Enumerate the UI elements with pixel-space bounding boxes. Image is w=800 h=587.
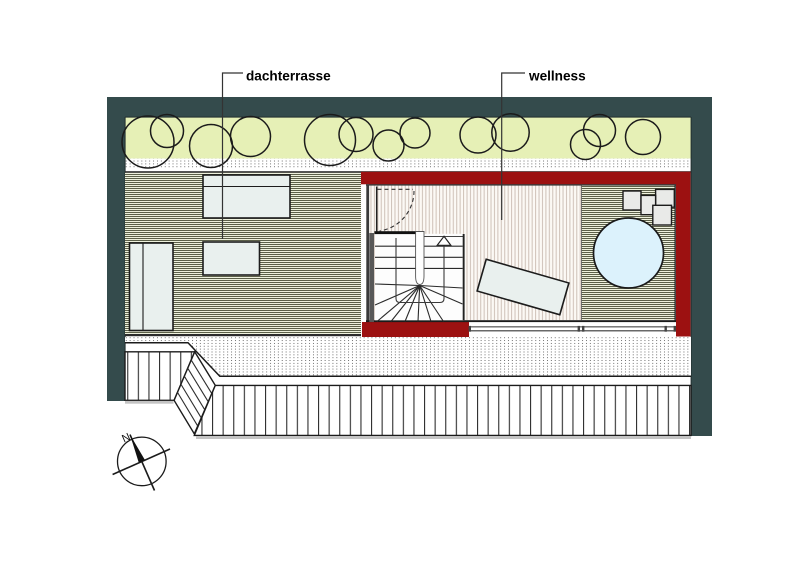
svg-text:wellness: wellness: [528, 69, 586, 84]
svg-text:dachterrasse: dachterrasse: [246, 69, 331, 84]
